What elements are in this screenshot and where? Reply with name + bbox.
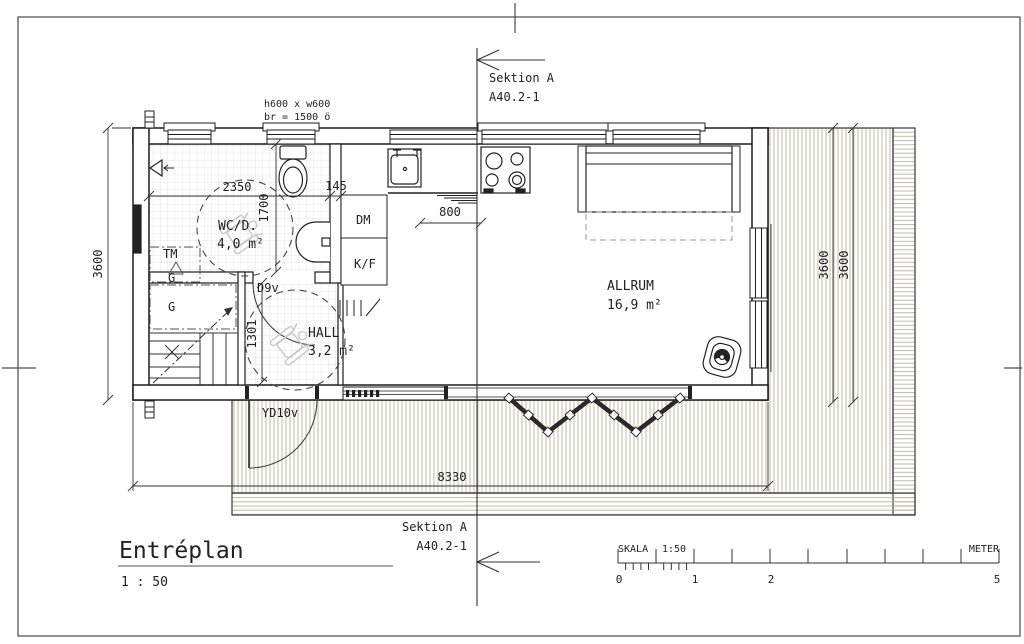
room-allrum-name: ALLRUM xyxy=(607,279,654,294)
label-tm: TM xyxy=(163,247,177,261)
section-bottom-ref: A40.2-1 xyxy=(416,539,467,553)
dim-3600-right-1: 3600 xyxy=(817,251,831,280)
scale-tick-1: 1 xyxy=(692,573,699,586)
dim-1301: 1301 xyxy=(245,320,259,349)
deck-edge-right xyxy=(893,128,915,515)
window-2 xyxy=(263,123,319,144)
room-wc-area: 4,0 m² xyxy=(217,237,264,252)
deck-edge-bottom xyxy=(232,493,915,515)
window-bottom xyxy=(343,387,445,400)
drawing-sheet: 2350 145 1700 800 3600 3600 3600 8330 13… xyxy=(0,0,1024,640)
sink xyxy=(388,149,421,187)
wall-niche xyxy=(134,205,141,253)
wash-basin xyxy=(296,222,330,262)
dim-3600-right-2: 3600 xyxy=(837,251,851,280)
window-3 xyxy=(390,130,477,144)
room-hall-area: 3,2 m² xyxy=(308,344,355,359)
wall-wc-right xyxy=(330,144,341,283)
plan-title: Entréplan xyxy=(119,538,244,564)
wall-stair-partition xyxy=(238,272,245,385)
title-block: Entréplan 1 : 50 xyxy=(118,538,393,590)
bed xyxy=(578,146,740,240)
label-g2: G xyxy=(168,300,175,314)
label-kf: K/F xyxy=(354,257,376,271)
label-yd10v: YD10v xyxy=(262,406,298,420)
room-allrum-area: 16,9 m² xyxy=(607,298,662,313)
room-wc-name: WC/D. xyxy=(218,219,257,234)
section-top-label: Sektion A xyxy=(489,71,555,85)
scale-bar-label: SKALA xyxy=(618,544,648,555)
scale-tick-2: 2 xyxy=(768,573,775,586)
toilet xyxy=(279,146,307,197)
dim-8330: 8330 xyxy=(438,470,467,484)
room-hall-name: HALL xyxy=(308,326,339,341)
dim-1700: 1700 xyxy=(257,194,271,223)
label-d9v: D9v xyxy=(257,281,279,295)
dim-3600-left: 3600 xyxy=(91,250,105,279)
allrum-furniture xyxy=(578,146,743,380)
dim-800: 800 xyxy=(439,205,461,219)
dim-2350: 2350 xyxy=(223,180,252,194)
window-note-2: br = 1500 ö xyxy=(264,112,330,123)
section-bottom-label: Sektion A xyxy=(402,520,468,534)
window-note-1: h600 x w600 xyxy=(264,99,330,110)
window-4 xyxy=(478,123,610,144)
coat-rack xyxy=(340,299,380,316)
stove xyxy=(481,147,530,193)
scale-bar-ratio: 1:50 xyxy=(662,544,686,555)
kitchen xyxy=(340,147,530,316)
floor-plan-drawing: 2350 145 1700 800 3600 3600 3600 8330 13… xyxy=(0,0,1024,640)
window-1 xyxy=(164,123,215,144)
label-g1: G xyxy=(168,271,175,285)
label-dm: DM xyxy=(356,213,370,227)
wall-wc-bottom-b xyxy=(315,272,330,283)
scale-bar-unit: METER xyxy=(969,544,1000,555)
wood-stove xyxy=(701,334,744,380)
stairs xyxy=(149,307,238,385)
wall-wc-bottom-a xyxy=(149,272,253,283)
dim-145: 145 xyxy=(325,179,347,193)
plan-scale: 1 : 50 xyxy=(121,575,168,590)
scale-tick-5: 5 xyxy=(994,573,1001,586)
scale-tick-0: 0 xyxy=(616,573,623,586)
counter-shade xyxy=(437,196,477,204)
window-5 xyxy=(608,123,705,144)
wall-left xyxy=(133,128,149,400)
scale-bar: SKALA 1:50 METER 0 1 2 5 xyxy=(616,544,1001,586)
section-top-ref: A40.2-1 xyxy=(489,90,540,104)
